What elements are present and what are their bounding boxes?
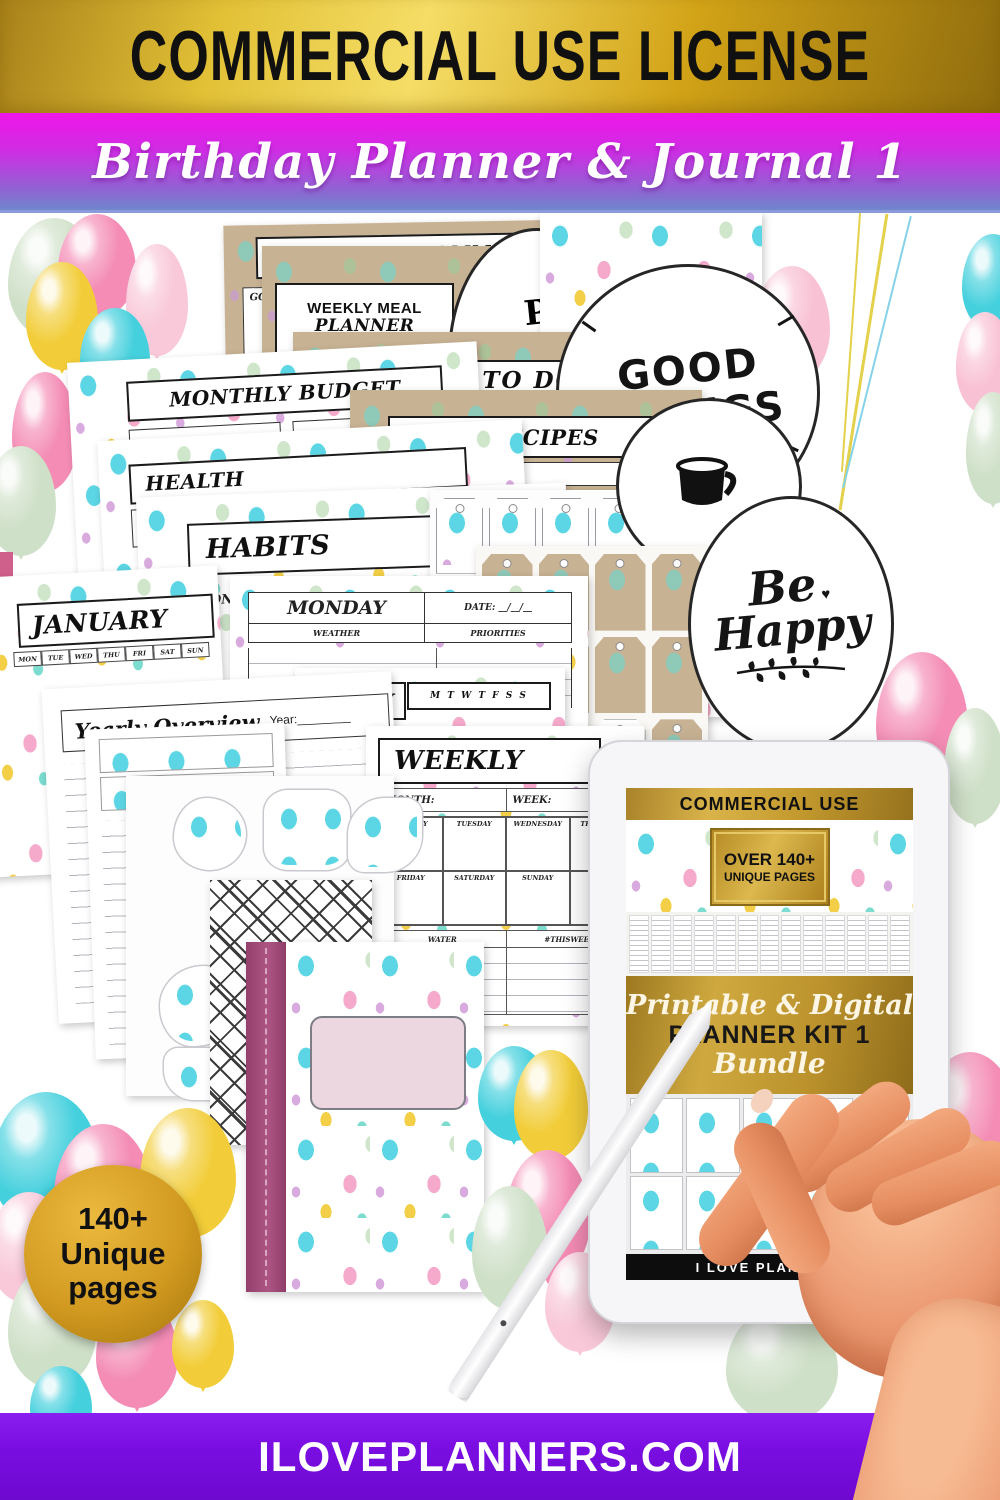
badge-line2: Unique	[60, 1237, 165, 1272]
notebook-label	[310, 1016, 466, 1110]
over-140-line1: OVER 140+	[724, 850, 815, 870]
notebook-pattern	[286, 942, 484, 1292]
tablet-header-text: COMMERCIAL USE	[680, 794, 860, 815]
day-cell-label: WEDNESDAY	[514, 820, 562, 870]
weekday-cell: WED	[69, 648, 98, 664]
january-title: JANUARY	[17, 594, 215, 648]
website-banner: ILOVEPLANNERS.COM	[0, 1413, 1000, 1500]
be-happy-oval: Be ♥ Happy	[688, 496, 894, 752]
monday-header: MONDAY DATE: __/__/__ WEATHER PRIORITIES	[248, 592, 572, 643]
thumbnail-page	[629, 915, 649, 973]
weekly-meal-line1: WEEKLY MEAL	[307, 301, 422, 318]
weekday-cell: SAT	[153, 643, 182, 659]
product-title: Birthday Planner & Journal 1	[92, 134, 908, 190]
be-happy-line2: Happy	[712, 597, 873, 662]
thumbnail-page	[716, 915, 736, 973]
tablet-script-bottom: Bundle	[713, 1049, 825, 1078]
title-banner: Birthday Planner & Journal 1	[0, 113, 1000, 213]
day-cell-label: SATURDAY	[454, 874, 494, 924]
sticker-thumbnail	[630, 1176, 683, 1251]
frame-sticker	[174, 798, 246, 870]
notebook-cover	[246, 942, 484, 1292]
product-poster: GOAL PLANNER GOAL: WEEKLY MEAL PLANNER P…	[0, 0, 1000, 1500]
weekday-cell: FRI	[125, 645, 154, 661]
balloon	[944, 708, 1000, 824]
pattern-strip	[99, 733, 274, 773]
unique-pages-badge: 140+ Unique pages	[24, 1165, 202, 1343]
thumbnail-page	[803, 915, 823, 973]
sticker-thumbnail	[686, 1098, 739, 1173]
thumbnail-page	[651, 915, 671, 973]
be-happy-text: Be ♥ Happy	[709, 559, 873, 658]
thumbnail-page	[694, 915, 714, 973]
license-banner: COMMERCIAL USE LICENSE	[0, 0, 1000, 113]
day-cell-label: TUESDAY	[457, 820, 492, 870]
tablet-thumbnail-strip	[626, 912, 913, 976]
stylus-dot	[499, 1319, 507, 1327]
day-cell-label: SUNDAY	[522, 874, 553, 924]
balloon	[514, 1050, 588, 1160]
thumbnail-page	[825, 915, 845, 973]
tablet-script-top: Printable & Digital	[626, 992, 913, 1020]
gift-tag-kraft	[595, 637, 646, 714]
over-140-line2: UNIQUE PAGES	[724, 870, 815, 884]
sparkle-dash	[582, 321, 597, 333]
daily-days-row: M T W T F S S	[407, 682, 551, 710]
sparkle-dash	[777, 315, 794, 327]
frame-sticker	[348, 798, 422, 872]
streamer-yellow	[839, 214, 889, 511]
date-label: DATE: __/__/__	[464, 603, 532, 613]
license-text: COMMERCIAL USE LICENSE	[130, 16, 870, 97]
badge-line3: pages	[68, 1271, 158, 1306]
streamer-blue	[842, 216, 912, 488]
weekday-cell: MON	[13, 651, 42, 667]
thumbnail-page	[760, 915, 780, 973]
tablet-pattern-band: OVER 140+ UNIQUE PAGES	[626, 820, 913, 912]
thumbnail-page	[868, 915, 888, 973]
weekday-cell: THU	[97, 646, 126, 662]
laurel-branch-icon	[731, 657, 851, 683]
priorities-label: PRIORITIES	[470, 628, 525, 638]
badge-line1: 140+	[78, 1202, 148, 1237]
thumbnail-page	[847, 915, 867, 973]
weekly-title: WEEKLY	[378, 738, 601, 784]
balloon	[172, 1300, 234, 1388]
weather-label: WEATHER	[313, 628, 360, 638]
website-url: ILOVEPLANNERS.COM	[258, 1433, 742, 1481]
notebook-spine	[246, 942, 286, 1292]
tablet-header-bar: COMMERCIAL USE	[626, 788, 913, 820]
thumbnail-page	[673, 915, 693, 973]
weekday-cell: TUE	[41, 649, 70, 665]
week-label: WEEK:	[513, 795, 552, 806]
thumbnail-page	[781, 915, 801, 973]
monday-title: MONDAY	[287, 597, 386, 619]
thumbnail-page	[890, 915, 910, 973]
weekday-cell: SUN	[181, 642, 210, 658]
thumbnail-page	[738, 915, 758, 973]
frame-sticker	[264, 790, 350, 870]
day-cell-label: FRIDAY	[397, 874, 425, 924]
over-140-badge: OVER 140+ UNIQUE PAGES	[710, 828, 830, 906]
gift-tag-kraft	[595, 554, 646, 631]
mug-icon	[672, 456, 746, 516]
